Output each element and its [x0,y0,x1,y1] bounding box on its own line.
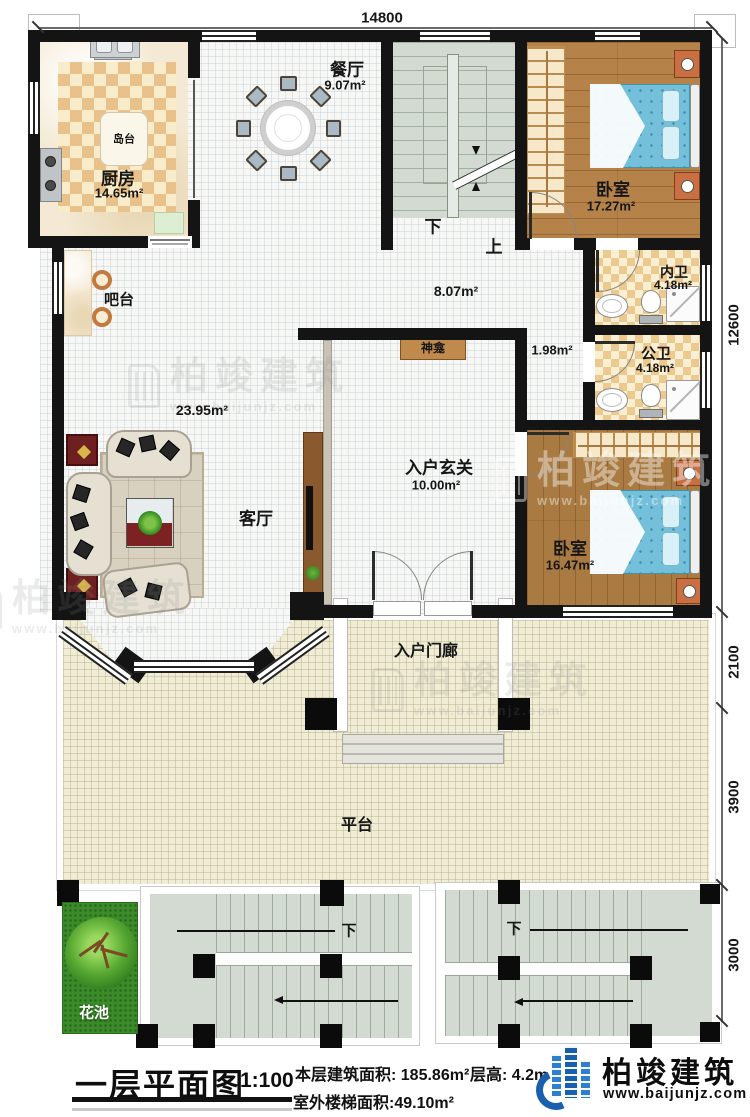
dimension-line-top [38,27,712,29]
label-bedroom1-area: 17.27m² [587,200,635,213]
stair-column [700,884,720,904]
wall-foyer-top [298,328,527,340]
stair-column [320,954,342,978]
bed-pillow [662,126,680,160]
bay-window [134,660,254,673]
floor-plan-canvas: 柏竣建筑 www.baijunjz.com 柏竣建筑 www.baijunjz.… [0,0,750,1117]
label-bedroom2-name: 卧室 [553,541,587,558]
stair-leader-line [283,1000,398,1002]
label-bar: 吧台 [104,293,134,308]
table-ornament [77,445,91,459]
stair-column [320,880,344,906]
door-leaf-bedroom2 [527,432,569,435]
public-bath-sink [596,388,628,412]
dimension-right-value: 2100 [726,645,743,678]
label-dining-area: 9.07m² [324,79,365,92]
stat-floor-area: 本层建筑面积: 185.86m² [295,1061,469,1085]
stair-arrow [274,996,283,1004]
entry-door-leaf [372,551,375,600]
window [595,30,640,42]
label-stair-up: 上 [486,239,503,256]
stair-column [136,1024,158,1048]
brand-logo-icon [536,1044,598,1112]
stair-column [320,1024,342,1048]
bedroom1-nightstand [674,172,700,200]
dimension-right-value: 3000 [726,938,743,971]
outdoor-stair-left-divider [216,952,412,966]
title-underline-light [72,1108,292,1111]
stair-column [498,1024,520,1048]
entry-door-slab [373,601,421,616]
stair-leader-line [177,930,335,932]
dimension-top-value: 14800 [361,11,403,26]
stair-column [498,956,520,980]
label-foyer-area: 10.00m² [412,479,460,492]
stair-direction-arrow [472,182,480,191]
wall-bath-divider [595,325,712,335]
dining-chair [326,120,341,137]
entry-door-slab [424,601,472,616]
table-ornament [77,579,91,593]
watermark-logo-icon [0,586,2,630]
door-slide-line [150,239,190,241]
wall-stair-right [515,30,527,250]
wall-stair-left [381,30,393,250]
dining-table [261,101,315,155]
stove-burner [45,180,56,191]
inner-bath-toilet [641,290,661,313]
logo-bar [581,1060,590,1098]
potted-plant [138,511,162,535]
door-leaf-bedroom1 [529,192,532,239]
window [700,352,712,408]
outdoor-stair-left-steps [216,894,412,1038]
wall-bottom-porch-right [472,605,530,618]
stair-direction-arrow [472,146,480,155]
dimension-right-value: 3900 [726,780,743,813]
logo-bar [565,1046,577,1098]
dimension-line-right [721,38,723,1022]
cabinet-plant [306,566,320,580]
lamp [683,585,696,598]
wall-bath-left [583,250,595,428]
stove-burner [45,156,56,167]
bed-pillow [662,90,680,122]
bedroom2-wardrobe [573,432,703,458]
window [420,30,490,42]
label-foyer-name: 入户玄关 [405,460,473,477]
end-table [66,434,98,466]
window [52,262,64,314]
door-leaf-public-bath [595,341,635,344]
entry-door-leaf [470,551,473,600]
label-bedroom2-area: 16.47m² [546,559,594,572]
dining-chair [280,166,297,181]
door-leaf-inner-bath [596,250,599,292]
stair-column [498,880,520,904]
porch-steps [342,734,504,764]
tree-canopy [65,917,137,989]
lamp [681,58,694,71]
label-dining-name: 餐厅 [330,62,364,79]
label-living-area: 23.95m² [176,403,228,417]
public-bath-shower [666,380,700,420]
bar-stool [92,307,112,327]
dining-table-inner [274,114,302,142]
door-gap [583,342,595,382]
door-slide-line [152,243,188,245]
bar-stool [92,270,112,290]
bay-post [290,592,324,620]
tv [306,486,313,550]
label-porch: 入户门廊 [394,644,458,660]
label-terrace: 平台 [341,818,373,834]
label-outdoor-stair-down-left: 下 [341,924,356,939]
label-public-bath-name: 公卫 [641,347,671,362]
wardrobe-pole [578,445,700,447]
stair-leader-line [530,929,688,931]
window [202,30,256,42]
wall-kitchen-left [28,30,40,248]
dining-chair [280,76,297,91]
bar-counter [64,250,92,336]
label-inner-bath-name: 内卫 [660,265,688,279]
door-gap [515,432,527,476]
label-kitchen-area: 14.65m² [95,187,143,200]
kitchen-sliding-door [193,80,195,198]
bed-pillow [662,532,680,566]
window [28,82,40,134]
stair-rail [447,54,459,218]
bay-post [52,592,86,620]
lamp [683,467,696,480]
door-gap [148,236,192,248]
stair-column [700,1022,720,1042]
wardrobe-pole [546,51,548,207]
window [563,605,673,618]
wall-bedroom2-top [515,420,712,430]
porch-column [498,698,530,730]
public-bath-toilet-tank [639,409,663,418]
logo-bar [552,1054,561,1096]
stair-column [630,956,652,980]
bedroom1-headboard [690,84,700,168]
bedroom1-wardrobe [527,46,565,214]
stair-leader-line [523,1000,633,1002]
plan-scale: 1:100 [240,1069,294,1093]
label-island: 岛台 [113,135,135,146]
label-inner-bath-area: 4.18m² [654,279,692,291]
bedroom1-nightstand [674,50,700,78]
label-bedroom1-name: 卧室 [596,182,630,199]
label-stair-down: 下 [425,219,442,236]
lamp [681,180,694,193]
bedroom2-headboard [690,490,700,574]
bed-pillow [662,496,680,528]
label-nook-area: 1.98m² [531,344,572,357]
inner-bath-sink [596,294,628,318]
public-bath-toilet [641,384,661,407]
bedroom2-nightstand [676,460,702,486]
bedroom2-nightstand [676,578,702,604]
label-corridor-area: 8.07m² [434,284,478,298]
inner-bath-toilet-tank [639,315,663,324]
door-gap [530,238,574,250]
stat-stair-area: 室外楼梯面积:49.10m² [293,1089,454,1113]
label-shrine: 神龛 [421,342,445,354]
cooktop-stove [40,148,62,202]
label-living-name: 客厅 [239,511,273,528]
wall-living-foyer-partition [323,340,332,605]
door-gap [596,238,638,250]
title-underline [72,1097,292,1102]
stair-arrow [514,998,523,1006]
wall-right [700,42,712,618]
stair-column [630,1024,652,1048]
window [700,265,712,321]
dining-chair [236,120,251,137]
dimension-right-value: 12600 [726,304,743,346]
sofa-pillow [139,435,157,453]
outdoor-stair-right-divider [445,962,645,976]
label-public-bath-area: 4.18m² [636,362,674,374]
brand-url: www.baijunjz.com [603,1086,747,1102]
wall-kitchen-dining-stub [188,30,200,78]
porch-column [305,698,337,730]
label-flower-bed: 花池 [79,1006,109,1021]
stair-column [193,954,215,978]
kitchen-mat [154,212,184,234]
stair-column [193,1024,215,1048]
label-outdoor-stair-down-right: 下 [506,922,521,937]
